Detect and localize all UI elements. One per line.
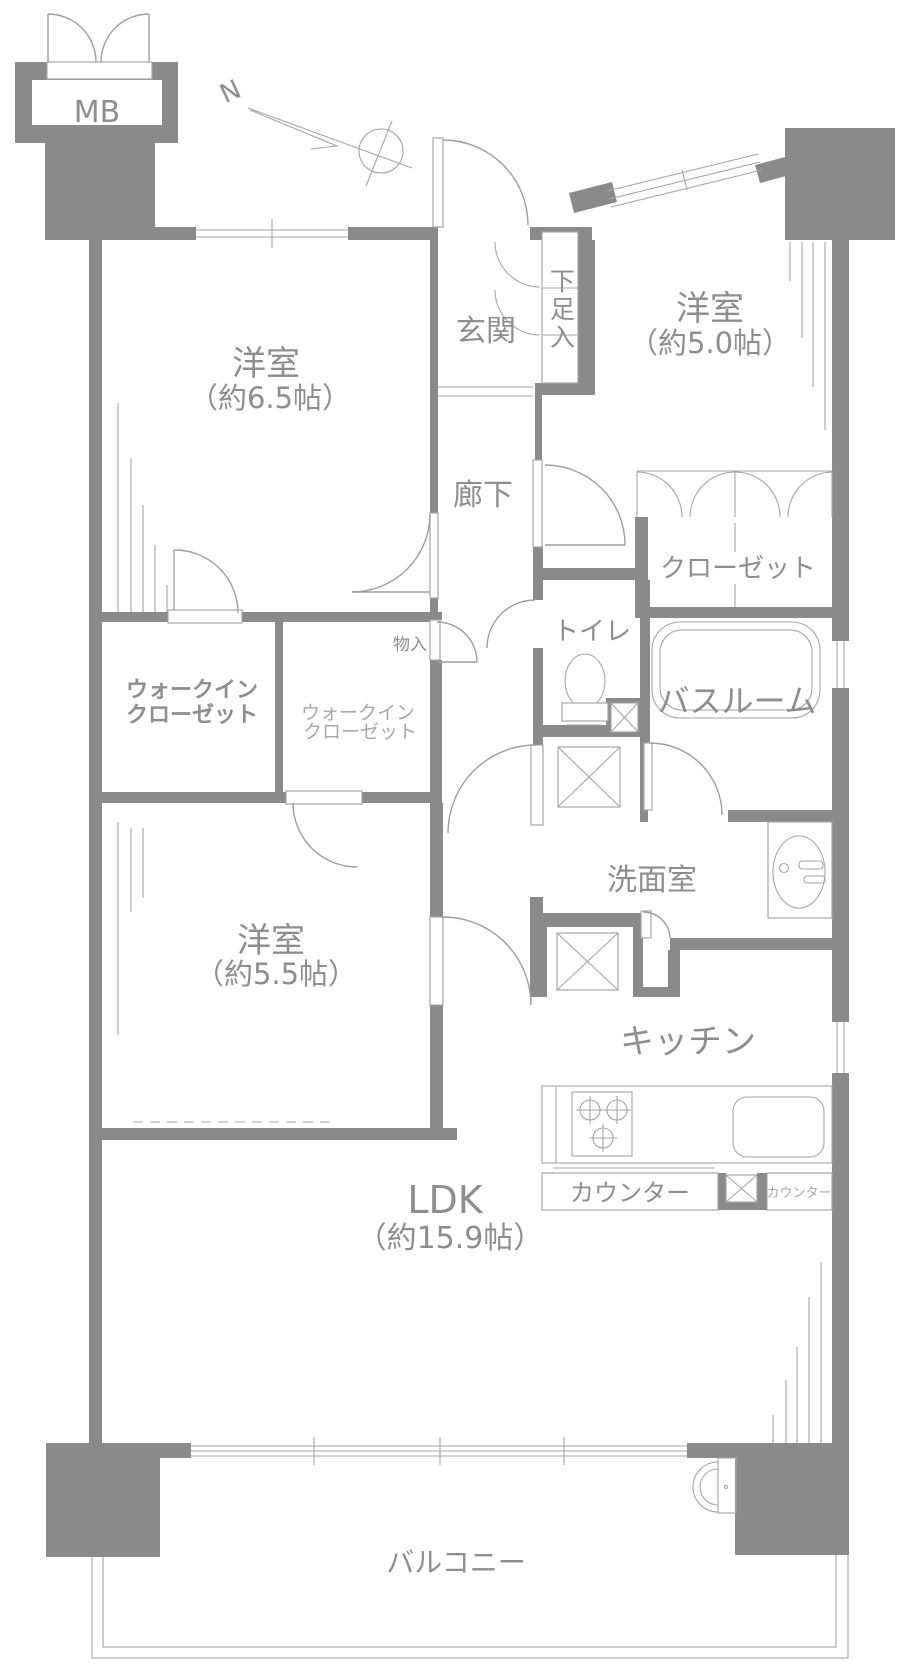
bedroom2-area: （約5.0帖） (629, 326, 791, 360)
kitchen-sink-icon (733, 1097, 824, 1157)
entrance-label: 玄関 (456, 314, 516, 349)
bedroom2-name: 洋室 (676, 289, 744, 329)
storage-label: 物入 (393, 635, 427, 655)
wic1-label-line1: ウォークイン (126, 678, 258, 703)
crossed-box-icon-counter (726, 1175, 757, 1202)
north-label: N (216, 75, 246, 110)
shoe-cabinet-label: 下足入 (547, 268, 576, 352)
counter-sub-label: カウンター (766, 1186, 831, 1201)
faucet-icon (693, 1458, 736, 1513)
balcony-label: バルコニー (386, 1546, 525, 1579)
walls (15, 62, 895, 1557)
labels: MB N 洋室 （約6.5帖） 洋室 （約5.0帖） 玄関 下足入 廊下 クロー… (74, 75, 832, 1579)
bedroom1-area: （約6.5帖） (189, 381, 351, 415)
floor-plan: MB N 洋室 （約6.5帖） 洋室 （約5.0帖） 玄関 下足入 廊下 クロー… (0, 0, 914, 1670)
bedroom1-name: 洋室 (232, 344, 300, 384)
wic1-label-line2: クローゼット (126, 703, 258, 728)
bedroom3-area: （約5.5帖） (195, 957, 357, 991)
floorplan-page: { "title": "マンション間取り図", "colors": { "wal… (0, 0, 914, 1670)
washroom-label: 洗面室 (607, 863, 697, 898)
hallway-label: 廊下 (453, 478, 513, 513)
stove-icon (572, 1092, 632, 1156)
crossed-box-icon-toilet (611, 703, 638, 732)
wic2-label-line2: クローゼット (303, 721, 417, 743)
ldk-name: LDK (407, 1178, 483, 1222)
counter-main-label: カウンター (570, 1179, 690, 1207)
bathroom-label: バスルーム (657, 682, 816, 720)
wash-basin-icon (768, 822, 832, 918)
kitchen-label: キッチン (620, 1022, 756, 1062)
hatch-lines (118, 242, 825, 1443)
crossed-box-icon-washroom (558, 747, 620, 807)
closet-label: クローゼット (660, 554, 816, 584)
toilet-icon (562, 654, 608, 725)
north-arrow-icon (248, 108, 412, 186)
toilet-label: トイレ (553, 617, 631, 647)
ldk-area: （約15.9帖） (357, 1221, 544, 1256)
bedroom3-name: 洋室 (237, 921, 305, 961)
meter-box-label: MB (74, 95, 120, 130)
crossed-box-icon-kitchen (557, 933, 618, 990)
